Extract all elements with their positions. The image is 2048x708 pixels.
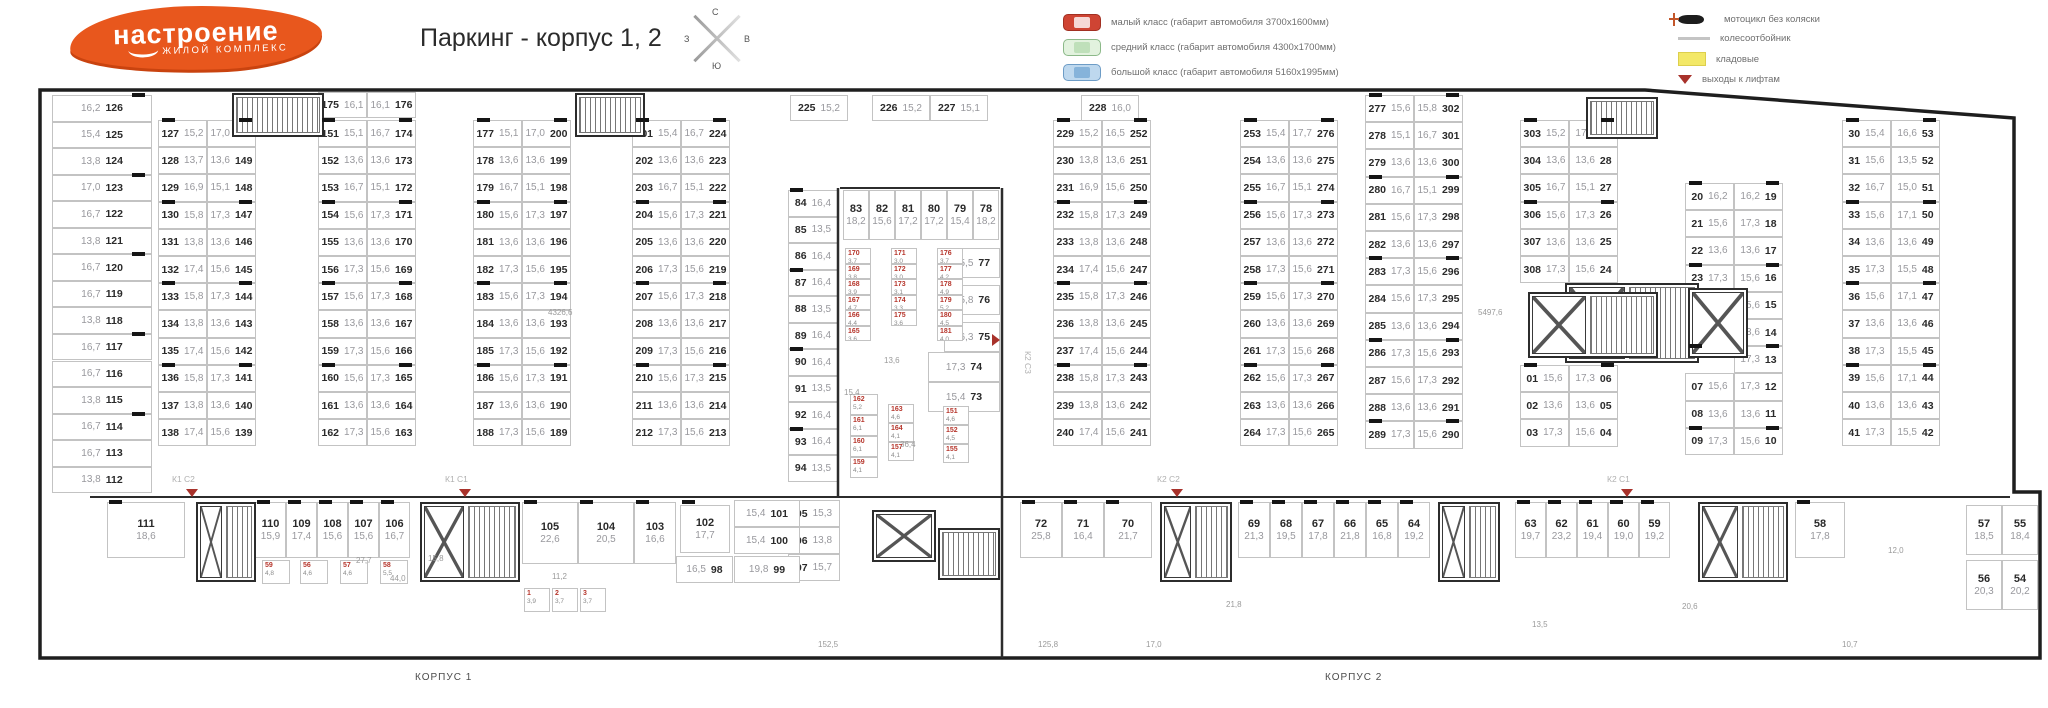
stall-number: 70 xyxy=(1122,518,1134,530)
parking-stall: 13217,4 xyxy=(158,256,207,283)
stall-number: 93 xyxy=(795,436,807,448)
stall-area: 13,6 xyxy=(1418,321,1437,332)
parking-stall: 13315,8 xyxy=(158,283,207,310)
stall-number: 81 xyxy=(902,203,914,215)
parking-stall: 15,6169 xyxy=(367,256,416,283)
parking-stall: 17,3295 xyxy=(1414,285,1463,312)
parking-stall: 10522,6 xyxy=(522,502,578,564)
parking-stall: 17,3191 xyxy=(522,365,571,392)
stall-number: 182 xyxy=(477,264,495,276)
parking-stall: 8416,4 xyxy=(788,190,838,217)
stall-number: 40 xyxy=(1848,400,1860,412)
stall-area: 17,2 xyxy=(898,216,917,227)
stall-number: 129 xyxy=(162,182,180,194)
wheel-stop-mark xyxy=(1689,181,1702,185)
wheel-stop-mark xyxy=(554,118,567,122)
stall-area: 13,6 xyxy=(685,318,704,329)
stall-number: 198 xyxy=(550,182,568,194)
parking-stall: 17516,1 xyxy=(318,92,367,118)
stall-area: 16,7 xyxy=(1418,130,1437,141)
storage-unit: 1814,0 xyxy=(937,326,963,342)
stall-number: 186 xyxy=(477,372,495,384)
parking-stall: 13,6269 xyxy=(1289,310,1338,337)
wheel-stop-mark xyxy=(162,281,175,285)
stall-area: 16,7 xyxy=(81,368,100,379)
wheel-stop-mark xyxy=(1321,281,1334,285)
parking-stall: 6921,3 xyxy=(1238,502,1270,558)
wheel-stop-mark xyxy=(636,363,649,367)
stall-number: 30 xyxy=(1848,128,1860,140)
stall-number: 176 xyxy=(395,99,413,111)
stall-number: 111 xyxy=(137,518,154,530)
parking-stall: 18615,6 xyxy=(473,365,522,392)
stall-area: 13,8 xyxy=(81,156,100,167)
dimension-label: 5497,6 xyxy=(1478,308,1538,318)
stall-area: 4,1 xyxy=(946,455,955,461)
stall-area: 16,7 xyxy=(371,128,390,139)
parking-stall: 5420,2 xyxy=(2002,560,2038,610)
stall-number: 167 xyxy=(395,318,413,330)
wheel-stop-mark xyxy=(1369,338,1382,342)
wheel-stop-mark xyxy=(1766,263,1779,267)
stall-number: 283 xyxy=(1369,266,1387,278)
elevator-shaft-icon xyxy=(1532,296,1586,354)
parking-stall: 21113,6 xyxy=(632,392,681,419)
parking-stall: 13,552 xyxy=(1891,147,1940,174)
stall-area: 17,3 xyxy=(658,346,677,357)
stall-number: 284 xyxy=(1369,293,1387,305)
parking-stall: 13,643 xyxy=(1891,392,1940,419)
stall-number: 263 xyxy=(1244,400,1262,412)
stall-area: 4,1 xyxy=(853,468,862,474)
stall-area: 16,9 xyxy=(1079,182,1098,193)
parking-stall: 18413,6 xyxy=(473,310,522,337)
wheel-stop-mark xyxy=(1923,281,1936,285)
stall-area: 16,4 xyxy=(812,357,831,368)
parking-stall: 15,1172 xyxy=(367,174,416,201)
stall-area: 15,6 xyxy=(526,264,545,275)
parking-stall: 15,6241 xyxy=(1102,419,1151,446)
stall-number: 180 xyxy=(477,209,495,221)
stall-number: 136 xyxy=(162,372,180,384)
parking-stall: 13713,8 xyxy=(158,392,207,419)
stall-number: 224 xyxy=(709,128,727,140)
parking-stall: 16,1176 xyxy=(367,92,416,118)
parking-stall: 17,150 xyxy=(1891,202,1940,229)
stall-area: 13,6 xyxy=(685,400,704,411)
stall-area: 17,3 xyxy=(946,362,965,373)
parking-stall: 15,6142 xyxy=(207,338,256,365)
stall-number: 303 xyxy=(1524,128,1542,140)
parking-stall: 15,4100 xyxy=(734,527,800,554)
stall-area: 15,6 xyxy=(1740,273,1759,284)
wheel-stop-mark xyxy=(1846,200,1859,204)
parking-stall: 13,6251 xyxy=(1102,147,1151,174)
wheel-stop-mark xyxy=(477,363,490,367)
parking-stall: 7818,2 xyxy=(973,190,999,240)
parking-stall: 17,3197 xyxy=(522,202,571,229)
legend-item: большой класс (габарит автомобиля 5160х1… xyxy=(1063,64,1339,81)
parking-stall: 15,6145 xyxy=(207,256,256,283)
stall-number: 152 xyxy=(322,155,340,167)
stall-area: 15,6 xyxy=(1293,346,1312,357)
wheel-stop-mark xyxy=(1369,256,1382,260)
parking-stall: 16,2126 xyxy=(52,95,152,122)
stall-number: 247 xyxy=(1130,264,1148,276)
stall-area: 15,6 xyxy=(1418,429,1437,440)
parking-stall: 13,6291 xyxy=(1414,394,1463,421)
parking-stall: 15,6192 xyxy=(522,338,571,365)
stair-elevator-core xyxy=(196,502,256,582)
logo: настроение жилой комплекс xyxy=(69,2,323,73)
wheel-stop-mark xyxy=(713,118,726,122)
stall-number: 115 xyxy=(106,394,123,406)
stall-number: 171 xyxy=(894,250,906,257)
wheel-stop-mark xyxy=(1601,200,1614,204)
stall-number: 274 xyxy=(1317,182,1335,194)
stair-elevator-core xyxy=(1160,502,1232,582)
stall-number: 236 xyxy=(1057,318,1075,330)
stall-number: 124 xyxy=(105,155,123,167)
stall-number: 74 xyxy=(970,361,982,373)
parking-stall: 17,326 xyxy=(1569,202,1618,229)
stall-number: 152 xyxy=(946,427,958,434)
stall-number: 55 xyxy=(2014,518,2026,530)
stall-area: 15,4 xyxy=(81,129,100,140)
stall-area: 17,3 xyxy=(1543,427,1562,438)
stall-number: 101 xyxy=(770,508,788,520)
stall-area: 15,6 xyxy=(1266,291,1285,302)
stall-area: 15,6 xyxy=(1418,266,1437,277)
parking-stall: 15,4125 xyxy=(52,122,152,149)
parking-stall: 25516,7 xyxy=(1240,174,1289,201)
stall-area: 19,4 xyxy=(1583,531,1602,542)
dimension-label: 15,8 xyxy=(428,554,488,564)
wheel-stop-mark xyxy=(381,500,394,504)
stall-area: 13,6 xyxy=(1708,245,1727,256)
wheel-stop-mark xyxy=(239,200,252,204)
wheel-stop-mark xyxy=(1022,500,1035,504)
stall-area: 16,7 xyxy=(1546,182,1565,193)
parking-stall: 26417,3 xyxy=(1240,419,1289,446)
stall-number: 158 xyxy=(322,318,340,330)
parking-stall: 15,8302 xyxy=(1414,95,1463,122)
stall-number: 239 xyxy=(1057,400,1075,412)
parking-stall: 13,628 xyxy=(1569,147,1618,174)
parking-stall: 11118,6 xyxy=(107,502,185,558)
parking-stall: 17916,7 xyxy=(473,174,522,201)
stall-number: 306 xyxy=(1524,209,1542,221)
stall-area: 17,4 xyxy=(184,264,203,275)
parking-stall: 8215,6 xyxy=(869,190,895,240)
parking-stall: 9216,4 xyxy=(788,402,838,429)
parking-stall: 6819,5 xyxy=(1270,502,1302,558)
stall-area: 13,8 xyxy=(1079,400,1098,411)
stall-number: 258 xyxy=(1244,264,1262,276)
stall-area: 15,3 xyxy=(813,508,832,519)
stall-area: 15,1 xyxy=(685,182,704,193)
storage-unit: 564,6 xyxy=(300,560,328,584)
stall-area: 13,6 xyxy=(211,400,230,411)
dimension-label: 10,7 xyxy=(1842,640,1902,650)
wheel-stop-mark xyxy=(322,200,335,204)
stall-area: 19,2 xyxy=(1645,531,1664,542)
stall-number: 126 xyxy=(105,102,123,114)
parking-stall: 7915,4 xyxy=(947,190,973,240)
stall-number: 157 xyxy=(322,291,340,303)
stall-number: 168 xyxy=(848,281,860,288)
stall-number: 275 xyxy=(1317,155,1335,167)
wheel-stop-mark xyxy=(109,500,122,504)
stall-area: 15,6 xyxy=(685,264,704,275)
parking-stall: 13,8112 xyxy=(52,467,152,494)
parking-stall: 18517,3 xyxy=(473,338,522,365)
stall-area: 15,6 xyxy=(1546,210,1565,221)
parking-stall: 23815,8 xyxy=(1053,365,1102,392)
stall-area: 13,6 xyxy=(1391,321,1410,332)
wheel-stop-mark xyxy=(399,118,412,122)
stall-area: 13,6 xyxy=(1575,155,1594,166)
stall-number: 245 xyxy=(1130,318,1148,330)
stall-area: 17,3 xyxy=(211,210,230,221)
parking-stall: 13,6272 xyxy=(1289,229,1338,256)
stall-number: 203 xyxy=(636,182,654,194)
stall-number: 125 xyxy=(105,129,123,141)
stall-area: 16,7 xyxy=(344,182,363,193)
parking-stall: 28715,6 xyxy=(1365,367,1414,394)
parking-stall: 15,6166 xyxy=(367,338,416,365)
stall-number: 270 xyxy=(1317,291,1335,303)
stall-area: 17,3 xyxy=(1293,291,1312,302)
stall-area: 20,3 xyxy=(1974,586,1993,597)
page-title: Паркинг - корпус 1, 2 xyxy=(420,24,662,53)
stall-number: 227 xyxy=(938,102,956,114)
stall-number: 128 xyxy=(162,155,180,167)
stall-number: 178 xyxy=(477,155,495,167)
stall-number: 38 xyxy=(1848,345,1860,357)
parking-stall: 5817,8 xyxy=(1795,502,1845,558)
wheel-stop-mark xyxy=(350,500,363,504)
parking-stall: 13,6294 xyxy=(1414,313,1463,340)
parking-stall: 27815,1 xyxy=(1365,122,1414,149)
parking-stall: 17,147 xyxy=(1891,283,1940,310)
stall-area: 15,4 xyxy=(746,508,765,519)
wheel-stop-mark xyxy=(162,118,175,122)
stall-area: 18,2 xyxy=(976,216,995,227)
dimension-label: 125,8 xyxy=(1038,640,1098,650)
stall-area: 4,6 xyxy=(891,415,900,421)
stall-number: 209 xyxy=(636,345,654,357)
parking-stall: 8916,4 xyxy=(788,323,838,350)
stall-area: 13,6 xyxy=(1266,400,1285,411)
stall-area: 13,6 xyxy=(526,318,545,329)
stall-area: 15,8 xyxy=(1418,103,1437,114)
parking-stall: 23013,8 xyxy=(1053,147,1102,174)
stall-area: 4,1 xyxy=(891,453,900,459)
stall-number: 58 xyxy=(1814,518,1826,530)
stall-number: 159 xyxy=(322,345,340,357)
stall-area: 23,2 xyxy=(1552,531,1571,542)
parking-stall: 0115,6 xyxy=(1520,365,1569,392)
stall-number: 221 xyxy=(709,209,727,221)
wheel-stop-mark xyxy=(322,118,335,122)
stall-number: 183 xyxy=(477,291,495,303)
storage-unit: 1723,0 xyxy=(891,264,917,280)
stall-area: 16,2 xyxy=(1708,191,1727,202)
parking-stall: 17,3215 xyxy=(681,365,730,392)
stall-area: 17,8 xyxy=(1810,531,1829,542)
stall-number: 305 xyxy=(1524,182,1542,194)
stall-number: 2 xyxy=(555,590,559,597)
stall-area: 13,6 xyxy=(1418,402,1437,413)
stall-area: 15,6 xyxy=(371,346,390,357)
parking-stall: 12715,2 xyxy=(158,120,207,147)
stall-area: 17,4 xyxy=(1079,264,1098,275)
wheel-stop-mark xyxy=(257,500,270,504)
parking-stall: 25915,6 xyxy=(1240,283,1289,310)
stall-area: 13,6 xyxy=(344,400,363,411)
parking-stall: 22915,2 xyxy=(1053,120,1102,147)
stall-number: 135 xyxy=(162,345,180,357)
wheel-stop-mark xyxy=(1244,200,1257,204)
stall-number: 171 xyxy=(395,209,413,221)
parking-stall: 17,3141 xyxy=(207,365,256,392)
parking-stall: 3615,6 xyxy=(1842,283,1891,310)
wheel-stop-mark xyxy=(1134,118,1147,122)
parking-stall: 12916,9 xyxy=(158,174,207,201)
wheel-stop-mark xyxy=(399,200,412,204)
stall-area: 17,3 xyxy=(1293,373,1312,384)
stall-number: 170 xyxy=(848,250,860,257)
stall-area: 15,6 xyxy=(1740,436,1759,447)
parking-stall: 17,3246 xyxy=(1102,283,1151,310)
parking-floor-plan: настроение жилой комплекс Паркинг - корп… xyxy=(0,0,2048,708)
stall-number: 277 xyxy=(1369,103,1387,115)
parking-stall: 17,3221 xyxy=(681,202,730,229)
stall-number: 205 xyxy=(636,236,654,248)
legend-item: малый класс (габарит автомобиля 3700х160… xyxy=(1063,14,1339,31)
dimension-label: 20,6 xyxy=(1682,602,1742,612)
stall-number: 261 xyxy=(1244,345,1262,357)
wheel-stop-mark xyxy=(1134,363,1147,367)
stall-area: 15,6 xyxy=(1391,212,1410,223)
wheel-stop-mark xyxy=(477,281,490,285)
parking-stall: 15,6296 xyxy=(1414,258,1463,285)
stall-number: 286 xyxy=(1369,347,1387,359)
parking-stall: 15,604 xyxy=(1569,419,1618,446)
parking-stall: 16,5252 xyxy=(1102,120,1151,147)
stall-area: 13,6 xyxy=(1293,318,1312,329)
wheel-stop-mark xyxy=(1446,175,1459,179)
parking-stall: 15,542 xyxy=(1891,419,1940,446)
wheel-stop-mark xyxy=(1106,500,1119,504)
stall-area: 13,6 xyxy=(1708,409,1727,420)
stall-area: 15,6 xyxy=(1575,427,1594,438)
stall-number: 57 xyxy=(343,562,351,569)
parking-stall: 13,6245 xyxy=(1102,310,1151,337)
stall-area: 13,6 xyxy=(1106,155,1125,166)
parking-stall: 30713,6 xyxy=(1520,229,1569,256)
storage-unit: 1774,2 xyxy=(937,264,963,280)
wheel-stop-mark xyxy=(1321,118,1334,122)
stall-area: 13,6 xyxy=(1293,400,1312,411)
stall-number: 06 xyxy=(1600,373,1612,385)
stall-area: 17,3 xyxy=(1391,266,1410,277)
parking-stall: 26117,3 xyxy=(1240,338,1289,365)
wheel-stop-mark xyxy=(132,252,145,256)
dimension-label: 12,0 xyxy=(1888,546,1948,556)
dimension-label: 13,6 xyxy=(884,356,944,366)
stair-elevator-core xyxy=(575,93,645,137)
stall-number: 202 xyxy=(636,155,654,167)
stall-area: 15,6 xyxy=(1865,155,1884,166)
stair-elevator-core xyxy=(1528,292,1658,358)
wheel-stop-mark xyxy=(1517,500,1530,504)
parking-stall: 15213,6 xyxy=(318,147,367,174)
stair-elevator-core xyxy=(1698,502,1788,582)
stall-number: 151 xyxy=(946,408,958,415)
stall-area: 13,8 xyxy=(81,315,100,326)
stall-area: 15,6 xyxy=(344,373,363,384)
stall-number: 216 xyxy=(709,345,727,357)
storage-unit: 1653,6 xyxy=(845,326,871,342)
stall-number: 138 xyxy=(162,427,180,439)
stall-area: 3,6 xyxy=(848,337,857,342)
elevator-shaft-icon xyxy=(876,514,932,558)
stall-number: 89 xyxy=(795,330,807,342)
stall-area: 17,4 xyxy=(292,531,311,542)
parking-stall: 0715,6 xyxy=(1685,373,1734,400)
stall-number: 12 xyxy=(1765,381,1777,393)
storage-unit: 1693,8 xyxy=(845,264,871,280)
stall-area: 3,7 xyxy=(555,599,564,605)
stall-number: 08 xyxy=(1691,408,1703,420)
stall-number: 264 xyxy=(1244,427,1262,439)
stall-number: 253 xyxy=(1244,128,1262,140)
parking-stall: 15,6268 xyxy=(1289,338,1338,365)
stall-number: 271 xyxy=(1317,264,1335,276)
wheel-stop-mark xyxy=(636,500,649,504)
stall-number: 63 xyxy=(1524,518,1536,530)
stall-number: 233 xyxy=(1057,236,1075,248)
stall-number: 259 xyxy=(1244,291,1262,303)
stall-number: 266 xyxy=(1317,400,1335,412)
stall-area: 13,6 xyxy=(1897,237,1916,248)
stall-area: 15,6 xyxy=(658,210,677,221)
section-label: К1 С2 xyxy=(172,474,216,484)
stall-number: 265 xyxy=(1317,427,1335,439)
parking-stall: 8616,4 xyxy=(788,243,838,270)
stall-number: 299 xyxy=(1442,184,1460,196)
parking-stall: 2213,6 xyxy=(1685,237,1734,264)
stall-number: 290 xyxy=(1442,429,1460,441)
wheel-stop-mark xyxy=(322,281,335,285)
parking-stall: 15,1299 xyxy=(1414,177,1463,204)
stall-number: 206 xyxy=(636,264,654,276)
stall-number: 122 xyxy=(105,208,123,220)
stall-number: 110 xyxy=(262,518,280,530)
parking-stall: 17,3144 xyxy=(207,283,256,310)
wheel-stop-mark xyxy=(1368,500,1381,504)
stall-number: 84 xyxy=(795,197,807,209)
stall-number: 99 xyxy=(773,564,785,576)
wheel-stop-mark xyxy=(1766,181,1779,185)
stall-number: 160 xyxy=(853,438,865,445)
stall-number: 59 xyxy=(265,562,273,569)
stall-number: 73 xyxy=(970,391,982,403)
stall-area: 13,6 xyxy=(344,237,363,248)
parking-stall: 5919,2 xyxy=(1639,502,1670,558)
